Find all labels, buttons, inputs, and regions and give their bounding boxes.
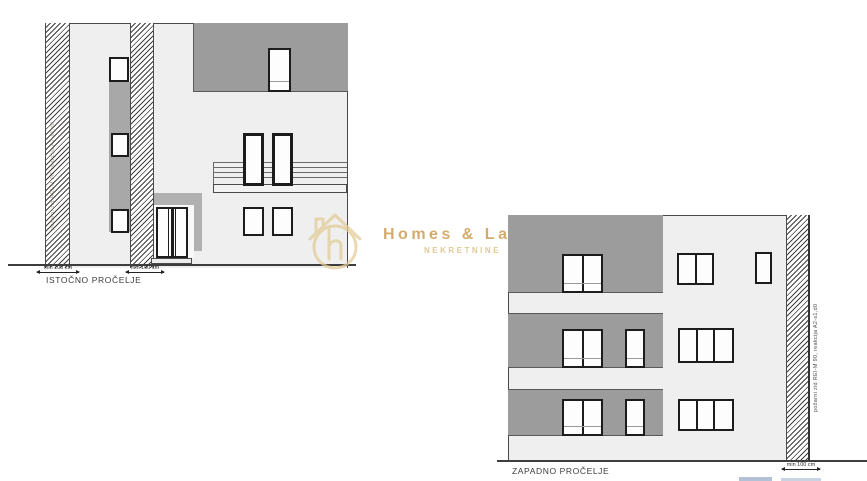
window-mullion (713, 401, 715, 429)
window-mullion (696, 401, 698, 429)
west-top-window-narrow (755, 252, 772, 284)
west-top-window-two-pane (677, 253, 714, 285)
west-elevation: požarni zid REI-M 90, reakcija A2-s1,d0 … (0, 0, 867, 481)
architectural-elevation-drawing: požarni zid REI-M 90, reakcija A2-s1,d0 (0, 0, 867, 481)
door-rail-line (627, 426, 643, 427)
door-mullion (582, 256, 584, 291)
west-middle-balcony-door (562, 329, 603, 368)
dimension-line (782, 469, 820, 470)
window-mullion (713, 330, 715, 361)
window-mullion (695, 255, 697, 283)
door-rail-line (564, 426, 601, 427)
door-rail-line (564, 358, 601, 359)
west-middle-window-three-pane (678, 328, 734, 363)
west-elevation-title: ZAPADNO PROČELJE (512, 466, 609, 476)
door-rail-line (627, 358, 643, 359)
window-mullion (696, 330, 698, 361)
west-ground-balcony-door (562, 399, 603, 436)
cropped-blue-fragment (739, 477, 772, 481)
door-mullion (582, 401, 584, 434)
west-firewall-hatch (786, 215, 810, 461)
dim-arrow-right-icon (817, 467, 821, 471)
dimension-text: min 100 cm (787, 462, 815, 468)
west-ground-window-three-pane (678, 399, 734, 431)
west-dimension: min 100 cm (782, 462, 820, 470)
dim-arrow-left-icon (781, 467, 785, 471)
west-firewall-note: požarni zid REI-M 90, reakcija A2-s1,d0 (811, 272, 821, 412)
door-mullion (582, 331, 584, 366)
west-top-balcony-door (562, 254, 603, 293)
west-ground-door-narrow (625, 399, 645, 436)
door-rail-line (564, 283, 601, 284)
west-middle-door-narrow (625, 329, 645, 368)
